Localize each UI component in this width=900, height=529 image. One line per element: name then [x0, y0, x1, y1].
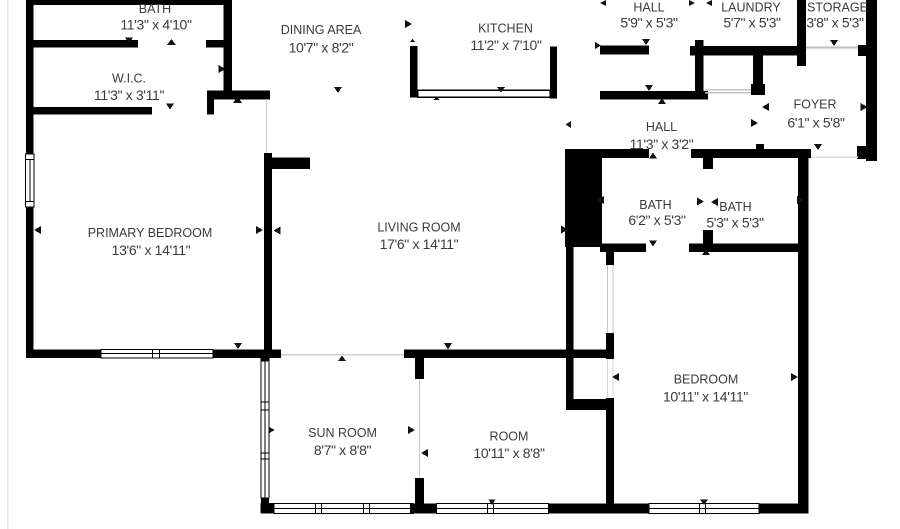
svg-text:BEDROOM: BEDROOM — [674, 373, 739, 387]
svg-text:11'3" x 3'11": 11'3" x 3'11" — [94, 87, 165, 103]
svg-text:10'7" x 8'2": 10'7" x 8'2" — [289, 40, 354, 56]
svg-text:DINING AREA: DINING AREA — [281, 23, 362, 37]
svg-text:BATH: BATH — [639, 198, 671, 212]
svg-text:17'6" x 14'11": 17'6" x 14'11" — [380, 236, 459, 252]
svg-text:13'6" x 14'11": 13'6" x 14'11" — [112, 242, 191, 258]
svg-text:5'3" x 5'3": 5'3" x 5'3" — [706, 215, 764, 231]
svg-text:ROOM: ROOM — [490, 430, 529, 444]
svg-text:PRIMARY BEDROOM: PRIMARY BEDROOM — [88, 226, 213, 240]
svg-text:6'1" x 5'8": 6'1" x 5'8" — [787, 115, 845, 131]
svg-text:LIVING ROOM: LIVING ROOM — [377, 221, 460, 235]
svg-text:3'8" x 5'3": 3'8" x 5'3" — [806, 15, 864, 31]
svg-text:8'7" x 8'8": 8'7" x 8'8" — [314, 442, 372, 458]
svg-text:HALL: HALL — [633, 1, 664, 15]
svg-text:10'11" x 8'8": 10'11" x 8'8" — [473, 445, 545, 461]
svg-text:BATH: BATH — [719, 200, 751, 214]
svg-text:BATH: BATH — [139, 2, 171, 16]
svg-text:W.I.C.: W.I.C. — [112, 72, 146, 86]
svg-text:STORAGE: STORAGE — [807, 1, 868, 15]
svg-text:6'2" x 5'3": 6'2" x 5'3" — [628, 212, 686, 228]
svg-text:11'3" x 4'10": 11'3" x 4'10" — [120, 17, 192, 33]
svg-text:5'9" x 5'3": 5'9" x 5'3" — [620, 15, 678, 31]
svg-text:5'7" x 5'3": 5'7" x 5'3" — [723, 15, 781, 31]
svg-text:HALL: HALL — [646, 120, 677, 134]
svg-text:10'11" x 14'11": 10'11" x 14'11" — [663, 389, 748, 405]
svg-text:FOYER: FOYER — [793, 98, 836, 112]
svg-text:SUN ROOM: SUN ROOM — [308, 426, 377, 440]
svg-text:LAUNDRY: LAUNDRY — [721, 1, 781, 15]
svg-text:11'3" x 3'2": 11'3" x 3'2" — [630, 136, 694, 152]
svg-text:11'2" x 7'10": 11'2" x 7'10" — [470, 37, 542, 53]
svg-text:KITCHEN: KITCHEN — [478, 22, 533, 36]
